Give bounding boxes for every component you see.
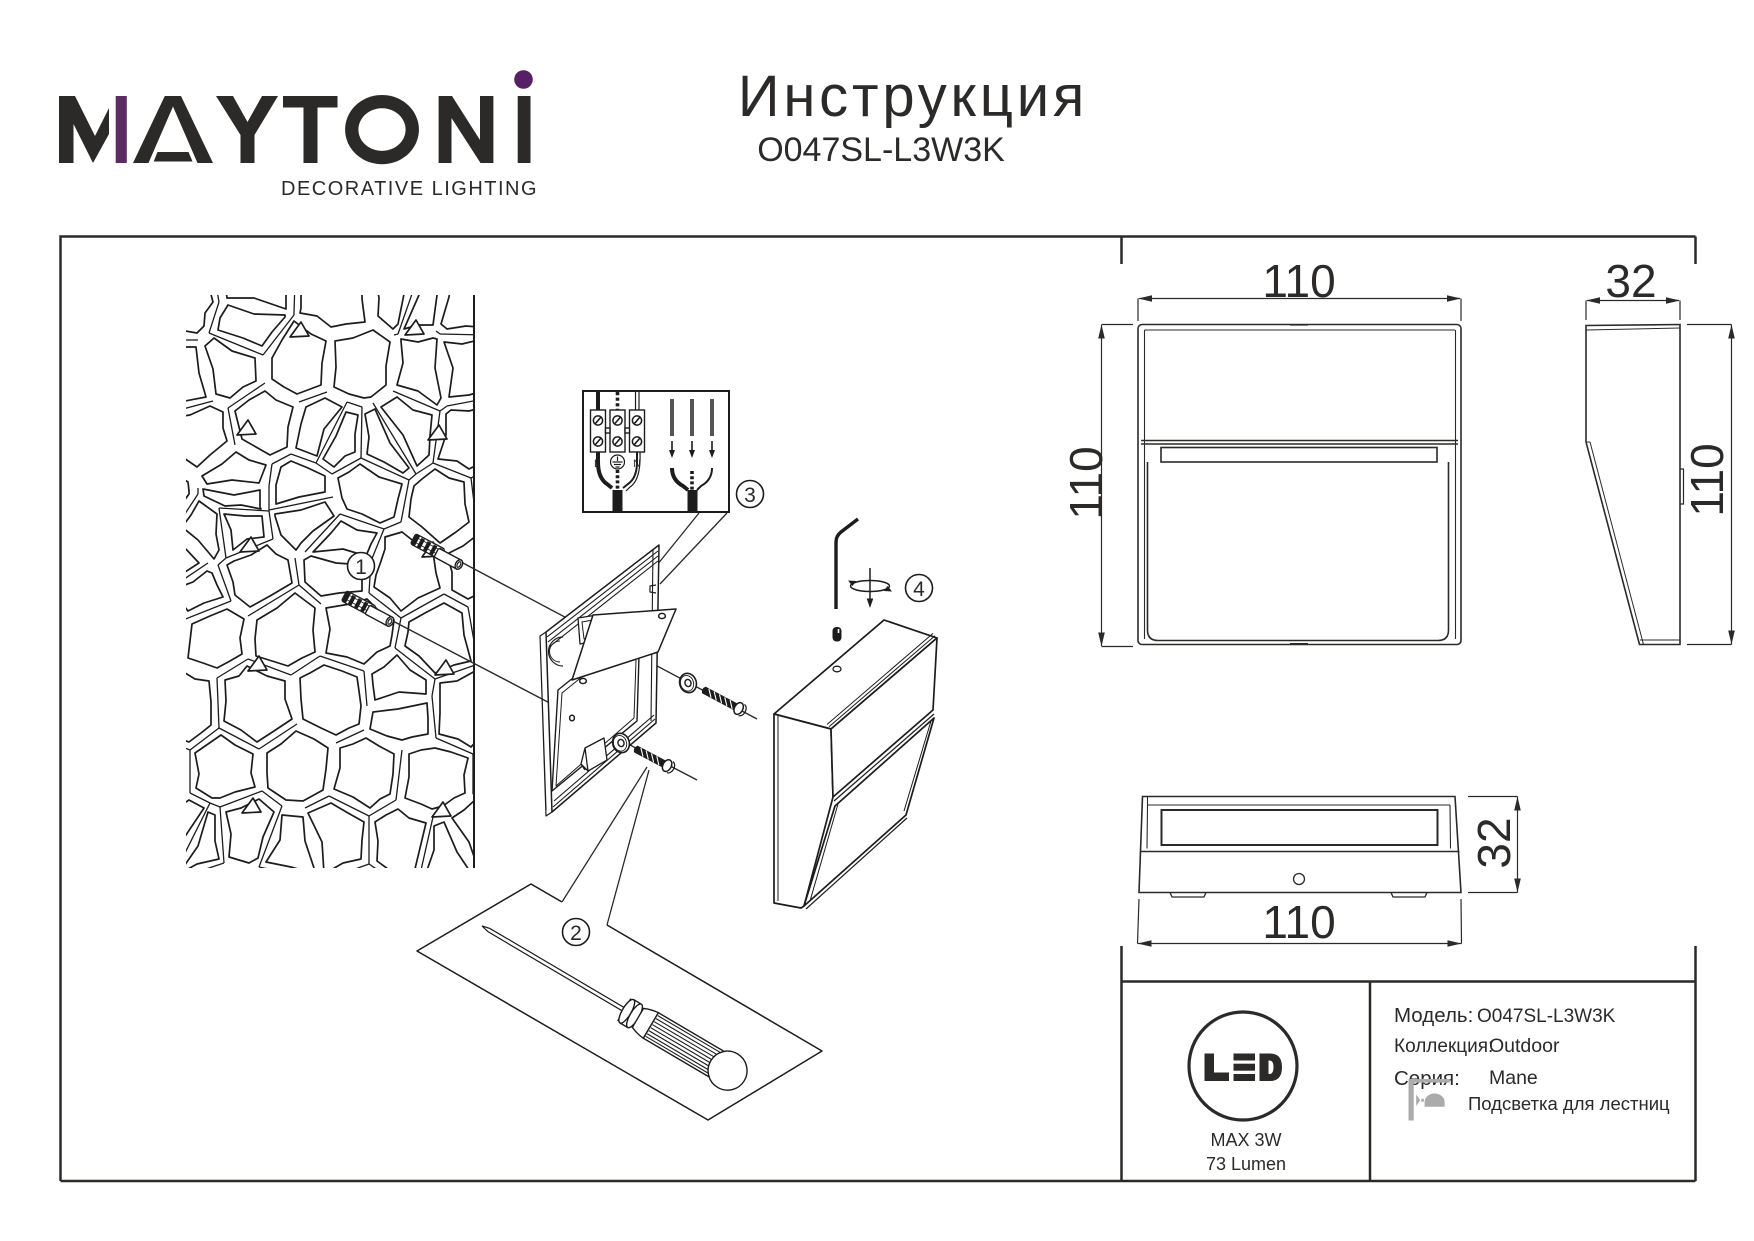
svg-text:32: 32 <box>1605 255 1656 307</box>
svg-text:Модель:: Модель: <box>1394 1004 1473 1027</box>
svg-text:Подсветка для лестниц: Подсветка для лестниц <box>1468 1093 1670 1114</box>
svg-text:4: 4 <box>913 578 925 601</box>
svg-text:3: 3 <box>744 484 756 507</box>
svg-text:O047SL-L3W3K: O047SL-L3W3K <box>1477 1006 1616 1027</box>
svg-text:32: 32 <box>1468 817 1520 868</box>
svg-text:1: 1 <box>355 556 367 579</box>
svg-text:Коллекция:: Коллекция: <box>1394 1036 1493 1057</box>
svg-text:Серия:: Серия: <box>1394 1067 1460 1090</box>
svg-text:O047SL-L3W3K: O047SL-L3W3K <box>757 131 1005 169</box>
svg-text:2: 2 <box>570 922 582 945</box>
svg-text:Mane: Mane <box>1489 1067 1538 1089</box>
svg-text:Outdoor: Outdoor <box>1489 1035 1560 1057</box>
svg-text:110: 110 <box>1060 446 1112 519</box>
svg-text:DECORATIVE LIGHTING: DECORATIVE LIGHTING <box>281 178 538 200</box>
svg-text:110: 110 <box>1262 255 1335 307</box>
svg-text:110: 110 <box>1681 443 1733 516</box>
svg-text:Инструкция: Инструкция <box>738 64 1088 129</box>
svg-text:110: 110 <box>1262 896 1335 948</box>
svg-text:73 Lumen: 73 Lumen <box>1206 1154 1286 1174</box>
svg-text:MAX 3W: MAX 3W <box>1210 1130 1281 1150</box>
